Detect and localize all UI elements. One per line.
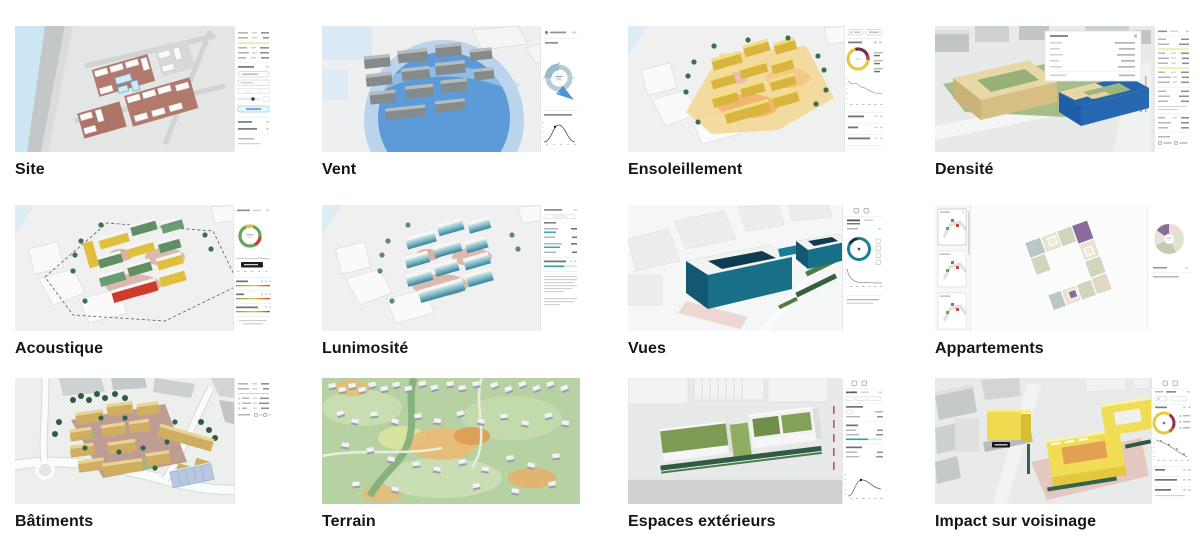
vent-thumbnail[interactable] bbox=[322, 26, 580, 152]
ensoleillement-thumbnail[interactable] bbox=[628, 26, 886, 152]
card-label-ensoleillement: Ensoleillement bbox=[628, 161, 886, 179]
card-impact[interactable]: Impact sur voisinage bbox=[935, 378, 1193, 531]
card-label-terrain: Terrain bbox=[322, 513, 580, 531]
espaces-thumbnail-art bbox=[628, 378, 886, 504]
floor-thumb bbox=[938, 209, 966, 245]
card-label-acoustique: Acoustique bbox=[15, 340, 273, 358]
site-side-panel bbox=[234, 26, 273, 152]
espaces-thumbnail[interactable] bbox=[628, 378, 886, 504]
impact-side-panel bbox=[1151, 378, 1193, 504]
densite-side-panel bbox=[1154, 26, 1193, 152]
espaces-side-panel bbox=[842, 378, 886, 504]
card-vues[interactable]: Vues bbox=[628, 205, 886, 358]
card-luminosite[interactable]: Lunimosité bbox=[322, 205, 580, 358]
card-densite[interactable]: Densité bbox=[935, 26, 1193, 179]
floor-list-sidebar bbox=[935, 205, 971, 331]
batiments-thumbnail[interactable] bbox=[15, 378, 273, 504]
impact-thumbnail-art bbox=[935, 378, 1193, 504]
card-vent[interactable]: Vent bbox=[322, 26, 580, 179]
ensoleillement-side-panel bbox=[844, 26, 886, 152]
card-label-luminosite: Lunimosité bbox=[322, 340, 580, 358]
densite-thumbnail-art bbox=[935, 26, 1193, 152]
acoustique-thumbnail-art bbox=[15, 205, 273, 331]
appartements-thumbnail-art bbox=[935, 205, 1193, 331]
terrain-thumbnail-art bbox=[322, 378, 580, 504]
card-label-appartements: Appartements bbox=[935, 340, 1193, 358]
site-map bbox=[15, 26, 234, 152]
acoustique-side-panel bbox=[233, 205, 273, 331]
site-thumbnail[interactable] bbox=[15, 26, 273, 152]
card-site[interactable]: Site bbox=[15, 26, 273, 179]
site-thumbnail-art bbox=[15, 26, 273, 152]
card-label-vues: Vues bbox=[628, 340, 886, 358]
vent-side-panel bbox=[540, 26, 580, 152]
card-acoustique[interactable]: Acoustique bbox=[15, 205, 273, 358]
card-label-espaces: Espaces extérieurs bbox=[628, 513, 886, 531]
card-ensoleillement[interactable]: Ensoleillement bbox=[628, 26, 886, 179]
impact-thumbnail[interactable] bbox=[935, 378, 1193, 504]
batiments-thumbnail-art bbox=[15, 378, 273, 504]
batiments-side-panel bbox=[234, 378, 273, 504]
apartment-mix-pie-chart bbox=[1154, 224, 1184, 254]
acoustique-thumbnail[interactable] bbox=[15, 205, 273, 331]
vues-thumbnail[interactable] bbox=[628, 205, 886, 331]
luminosite-thumbnail[interactable] bbox=[322, 205, 580, 331]
card-espaces[interactable]: Espaces extérieurs bbox=[628, 378, 886, 531]
card-label-densite: Densité bbox=[935, 161, 1193, 179]
appartements-thumbnail[interactable] bbox=[935, 205, 1193, 331]
floor-thumb bbox=[938, 251, 966, 287]
card-label-impact: Impact sur voisinage bbox=[935, 513, 1193, 531]
densite-tooltip bbox=[1045, 31, 1141, 81]
terrain-thumbnail[interactable] bbox=[322, 378, 580, 504]
sidebar-scrollbar bbox=[968, 211, 969, 255]
card-batiments[interactable]: Bâtiments bbox=[15, 378, 273, 531]
card-label-site: Site bbox=[15, 161, 273, 179]
vent-thumbnail-art bbox=[322, 26, 580, 152]
floor-thumb bbox=[938, 293, 966, 329]
luminosite-side-panel bbox=[540, 205, 580, 331]
vues-thumbnail-art bbox=[628, 205, 886, 331]
card-label-vent: Vent bbox=[322, 161, 580, 179]
ensoleillement-thumbnail-art bbox=[628, 26, 886, 152]
card-terrain[interactable]: Terrain bbox=[322, 378, 580, 531]
luminosite-thumbnail-art bbox=[322, 205, 580, 331]
card-appartements[interactable]: Appartements bbox=[935, 205, 1193, 358]
appartements-side-panel bbox=[1147, 205, 1193, 331]
card-label-batiments: Bâtiments bbox=[15, 513, 273, 531]
densite-thumbnail[interactable] bbox=[935, 26, 1193, 152]
vues-side-panel bbox=[842, 205, 886, 331]
